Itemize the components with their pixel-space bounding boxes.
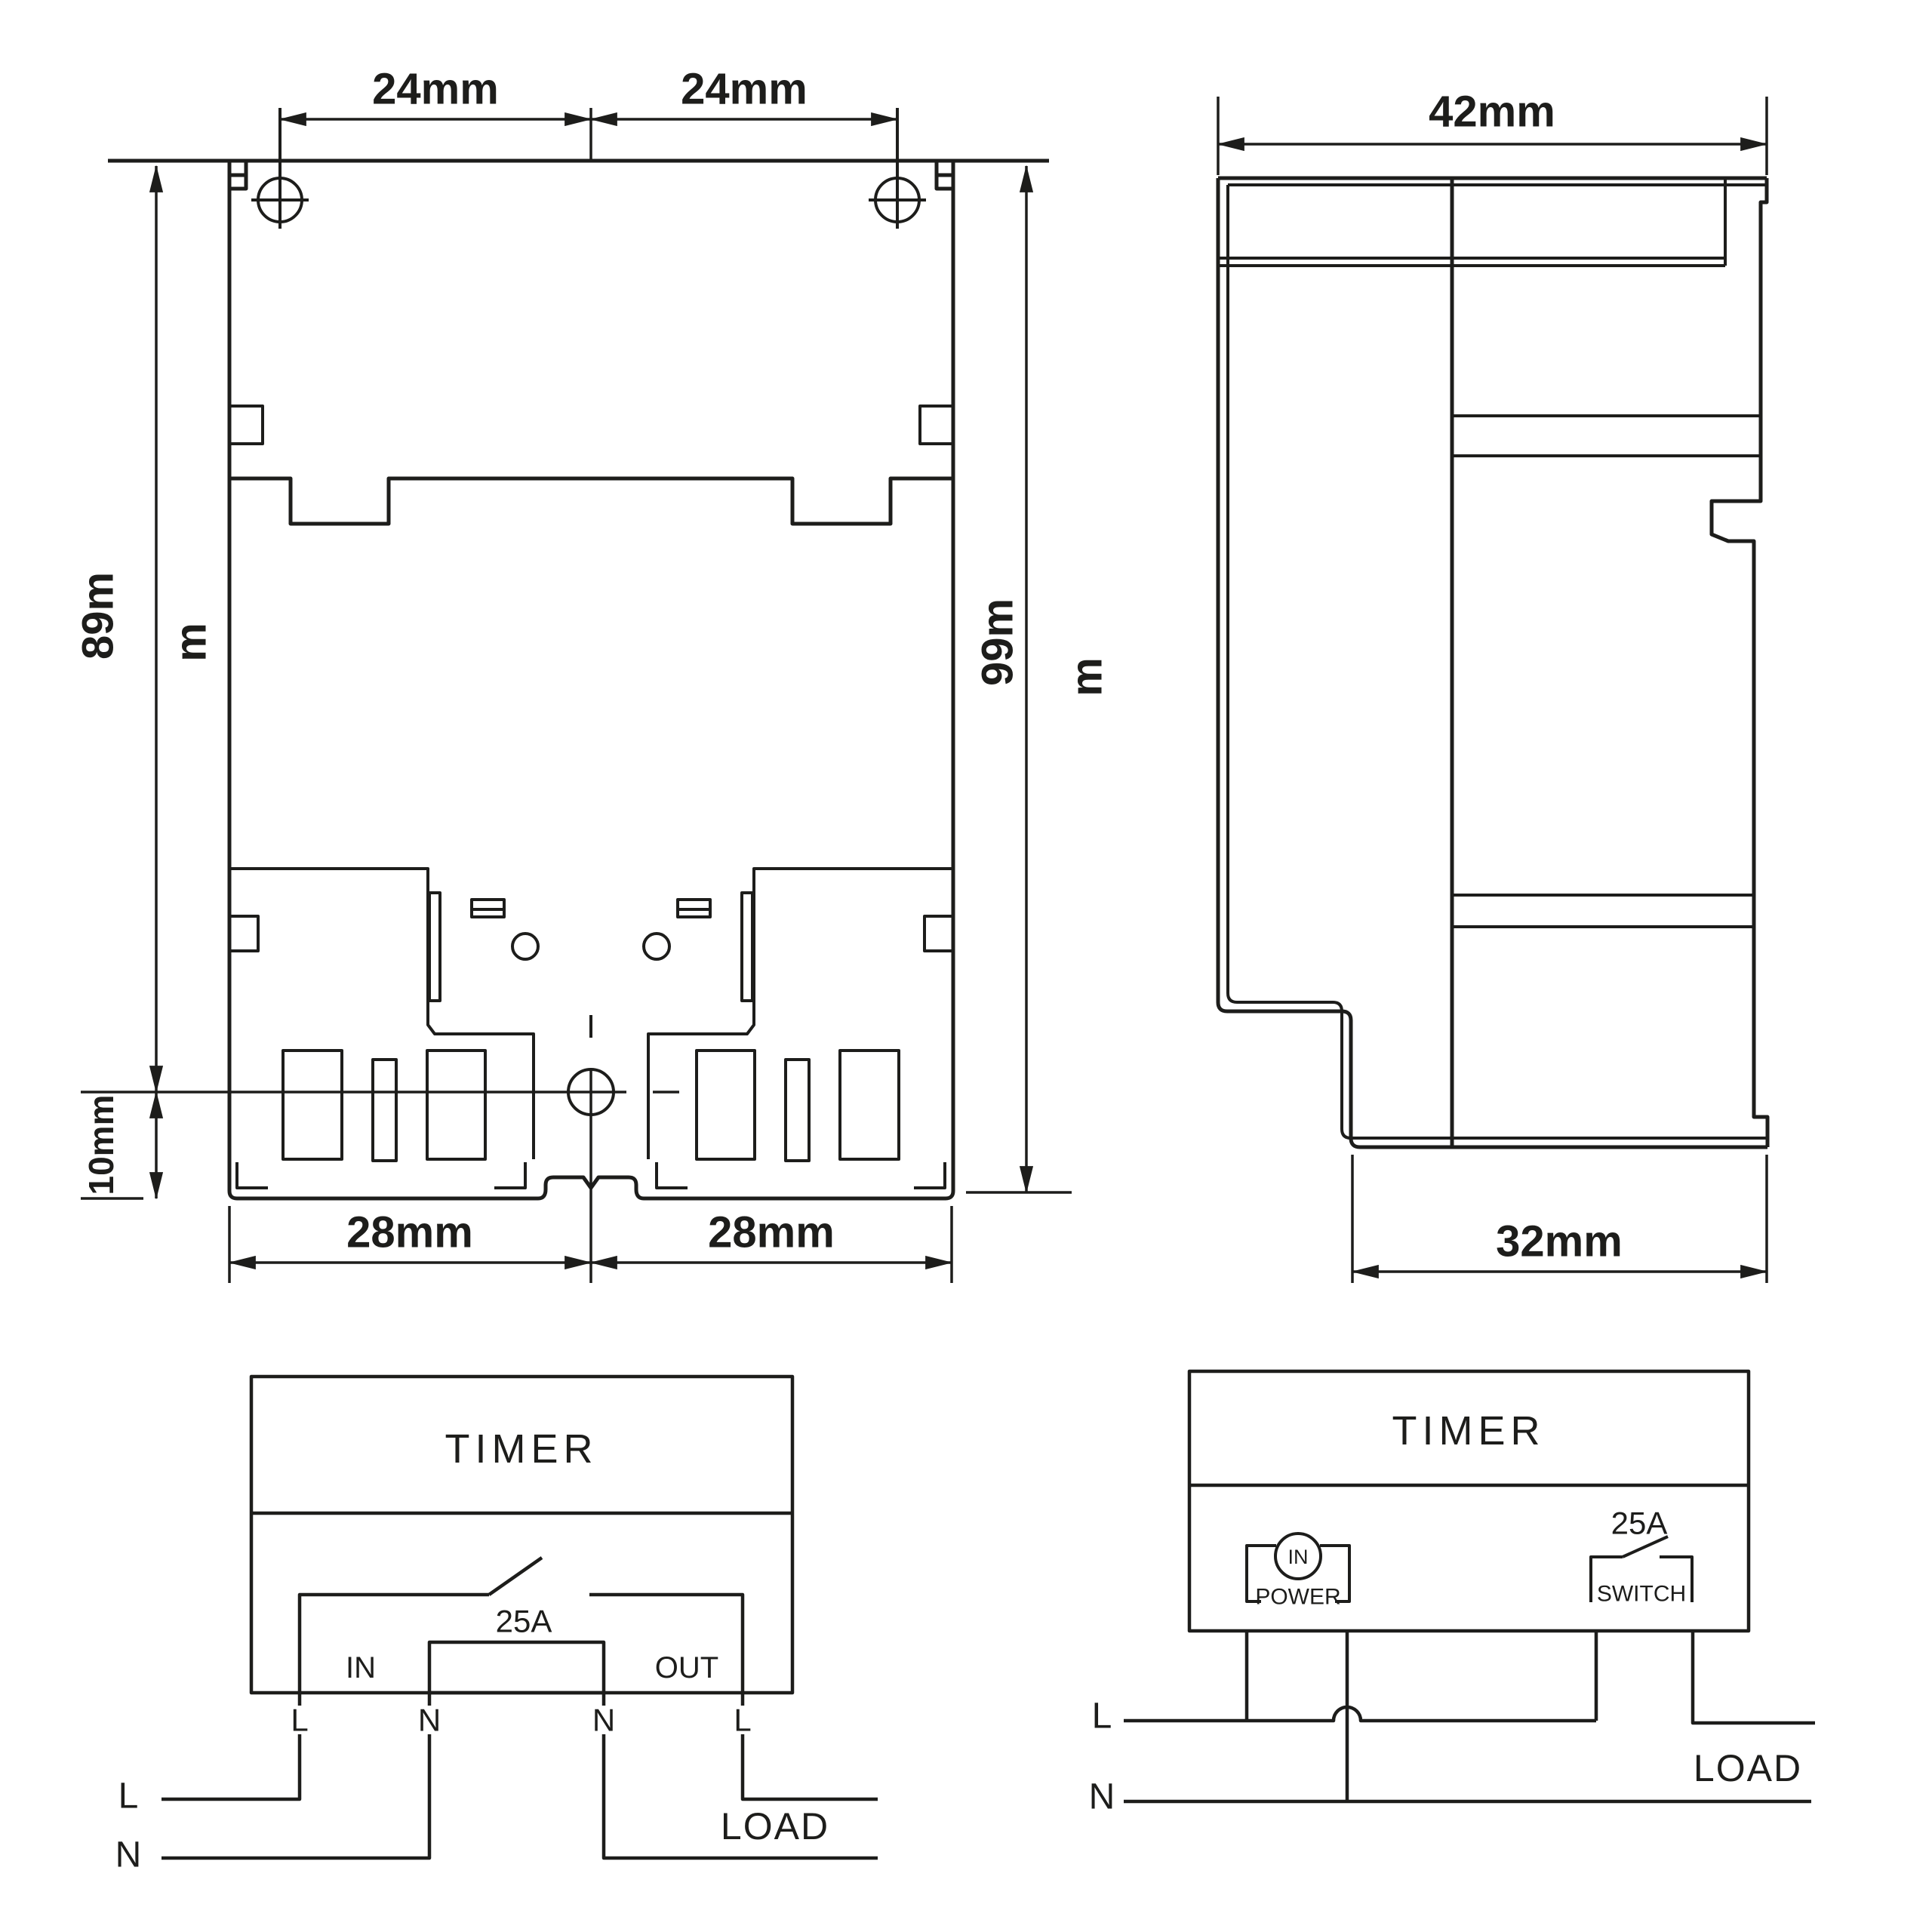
power-label: POWER [1255,1585,1340,1610]
dim-height-total: 99m [974,598,1023,686]
terminal-4: L [734,1703,751,1738]
timer-title: TIMER [445,1426,598,1472]
supply-live-label: L [1092,1697,1112,1737]
dim-hole-spacing-right: 24mm [681,65,808,114]
wiring-diagram-switched: TIMER IN POWER 25A SWITCH L N LOAD [1089,1371,1815,1817]
dim-width-right: 28mm [708,1208,835,1257]
dim-bottom-offset: 10mm [82,1095,121,1195]
mounting-hole-right-icon [869,108,926,229]
neutral-bridge-box [429,1642,604,1693]
dim-hole-spacing-left: 24mm [372,65,499,114]
dim-height-main-wrap: m [167,623,216,662]
page: { "colors": { "line": "#1d1d1b", "backgr… [0,0,1932,1932]
timer-title: TIMER [1392,1408,1546,1454]
supply-live-label: L [118,1777,139,1817]
in-label: IN [346,1651,376,1684]
terminal-2: N [418,1703,441,1738]
dim-width-left: 28mm [346,1208,473,1257]
load-label: LOAD [721,1805,829,1847]
terminal-block-left [229,869,538,1188]
dim-depth-top: 42mm [1429,88,1555,137]
dim-depth-bottom: 32mm [1496,1217,1623,1266]
out-label: OUT [655,1651,718,1684]
wiring-diagram-inline: TIMER 25A IN OUT L N N L L N LOAD [115,1377,878,1875]
front-view-outline [108,161,1049,1198]
side-view-outline [1218,178,1767,1147]
supply-neutral-label: N [1089,1777,1115,1817]
dim-height-main: 89m [74,572,123,660]
supply-neutral-label: N [115,1835,142,1875]
side-view: 42mm 32mm [1218,88,1767,1284]
front-view: 24mm 24mm 89m m 10mm 99m m 28mm 28mm [74,65,1112,1284]
power-core-label: IN [1288,1546,1309,1568]
terminal-3: N [592,1703,615,1738]
load-label: LOAD [1694,1747,1802,1789]
rating-label: 25A [496,1604,552,1639]
terminal-1: L [291,1703,308,1738]
terminal-block-right [644,869,953,1188]
technical-drawing: 24mm 24mm 89m m 10mm 99m m 28mm 28mm [0,0,1932,1932]
dim-height-total-wrap: m [1063,657,1112,697]
switch-label: SWITCH [1597,1582,1686,1607]
center-hole-icon [568,1015,679,1283]
mounting-hole-left-icon [251,108,309,229]
rating-label: 25A [1611,1506,1668,1541]
timer-box [251,1377,792,1693]
